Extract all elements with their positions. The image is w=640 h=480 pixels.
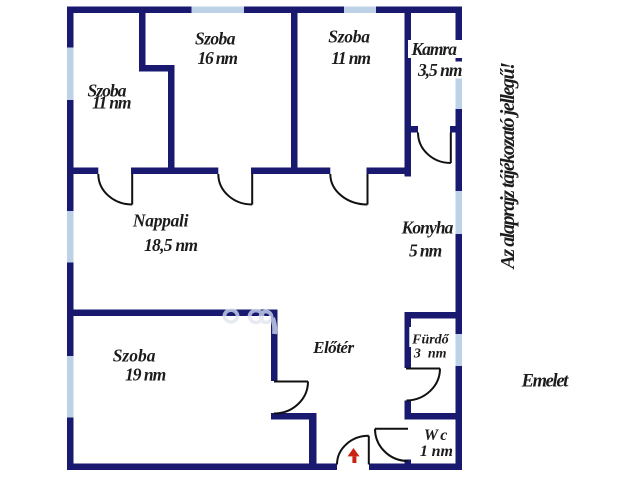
- svg-text:11 nm: 11 nm: [331, 48, 371, 68]
- svg-text:3 nm: 3 nm: [413, 347, 447, 362]
- svg-text:5 nm: 5 nm: [409, 241, 442, 261]
- svg-text:Nappali: Nappali: [132, 211, 189, 231]
- svg-text:Az alaprajz tájékozató jellegű: Az alaprajz tájékozató jellegű!: [497, 62, 519, 271]
- svg-text:Szoba: Szoba: [195, 29, 236, 49]
- svg-text:Szoba: Szoba: [113, 346, 156, 366]
- svg-text:16 nm: 16 nm: [197, 48, 238, 68]
- svg-text:18,5 nm: 18,5 nm: [144, 235, 198, 255]
- svg-text:Fürdő: Fürdő: [411, 332, 450, 347]
- svg-text:Előtér: Előtér: [312, 338, 354, 357]
- svg-text:Szoba: Szoba: [328, 27, 370, 47]
- svg-text:19 nm: 19 nm: [125, 365, 166, 385]
- svg-text:3,5 nm: 3,5 nm: [417, 60, 463, 80]
- svg-text:1 nm: 1 nm: [420, 443, 453, 460]
- svg-text:11 nm: 11 nm: [92, 93, 132, 113]
- svg-text:Wc: Wc: [424, 427, 447, 444]
- svg-text:Emelet: Emelet: [521, 372, 570, 392]
- svg-text:Kamra: Kamra: [410, 39, 457, 59]
- svg-text:Konyha: Konyha: [401, 217, 454, 237]
